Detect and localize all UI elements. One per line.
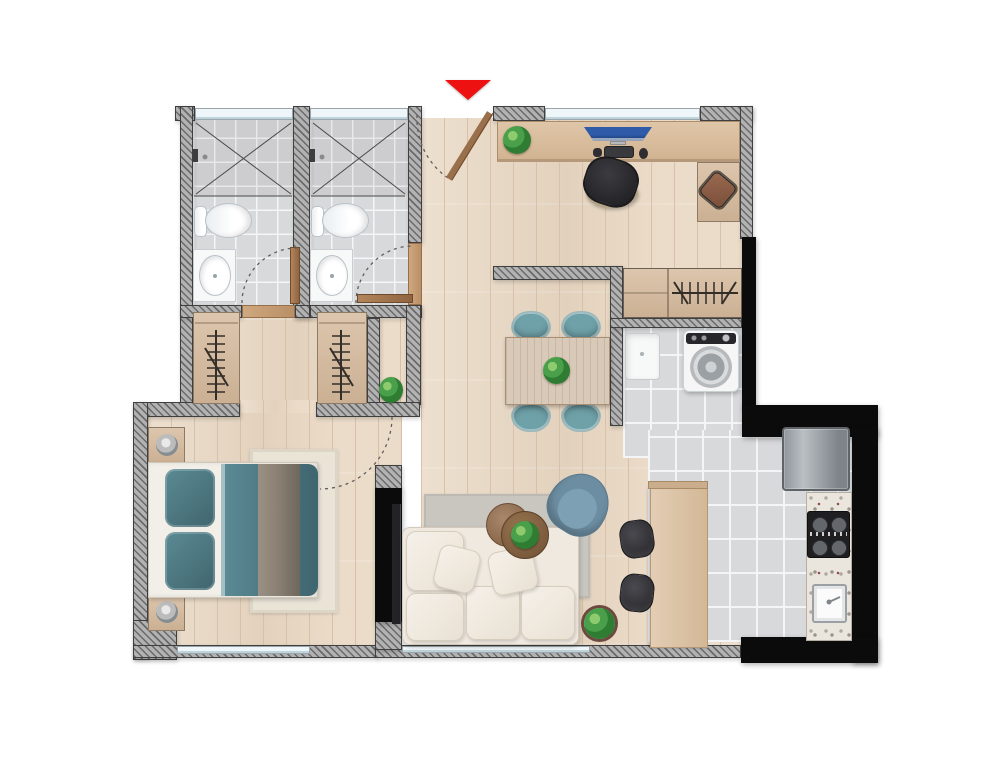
bar-counter — [650, 488, 708, 648]
coffee-table-plant — [511, 521, 539, 549]
living-floor-plant — [584, 608, 615, 639]
washer-control-panel — [686, 333, 736, 344]
cooktop-knobs — [810, 532, 847, 536]
door-leaf-bathroom-2 — [357, 294, 413, 303]
dining-chair-bottom-2 — [561, 402, 601, 432]
bed-throw-blanket — [258, 464, 300, 596]
bar-counter-edge — [648, 481, 708, 489]
shower-zone-2 — [310, 119, 408, 196]
window-bathroom-2 — [310, 108, 408, 120]
utility-sink — [625, 333, 660, 380]
mouse — [639, 148, 648, 159]
entrance-marker-icon — [445, 80, 491, 100]
wardrobe-cabinet — [623, 268, 742, 318]
desk-plant — [503, 126, 531, 154]
monitor-stand — [610, 141, 626, 145]
tv-screen — [392, 504, 401, 624]
dining-chair-bottom-1 — [511, 402, 551, 432]
washer-drum — [690, 346, 732, 388]
sink-basin-2 — [316, 255, 348, 296]
window-bedroom — [177, 646, 310, 654]
wall-tv-cap-top — [375, 465, 402, 490]
shower-zone-1 — [193, 119, 293, 196]
sofa-chaise-seat — [406, 593, 464, 641]
sink-basin-1 — [199, 255, 231, 296]
toilet-bowl-2 — [322, 203, 369, 238]
window-bathroom-1 — [195, 108, 293, 120]
shower-head-2 — [310, 149, 315, 162]
threshold-bathroom-1 — [242, 305, 295, 318]
monitor-screen — [584, 127, 652, 141]
lamp-bottom — [156, 601, 178, 623]
nook-plant — [379, 377, 403, 403]
washing-machine — [683, 330, 739, 392]
wall-dining-vertical — [610, 266, 623, 426]
bed-pillow-bottom — [165, 532, 215, 590]
wall-bath-divider-foot — [295, 305, 310, 318]
wall-bath2-right — [408, 106, 422, 243]
bed-pillow-top — [165, 469, 215, 527]
dining-table-plant — [543, 357, 570, 384]
window-living — [402, 646, 590, 653]
armchair-seat — [550, 482, 603, 536]
black-wall-right-mid — [742, 237, 756, 409]
wall-bedroom-top-right — [316, 402, 420, 417]
wall-top-entry-right — [493, 106, 545, 121]
sofa-seat-1 — [466, 586, 520, 640]
wall-study-right — [740, 106, 753, 239]
wall-bedroom-top-left — [133, 402, 240, 417]
refrigerator — [782, 427, 850, 491]
wall-bath-left — [180, 106, 193, 406]
wall-closet2-right — [367, 318, 380, 405]
toilet-bowl-1 — [205, 203, 252, 238]
wall-under-wardrobe — [610, 318, 742, 328]
wall-tv-cap-bottom — [375, 620, 402, 650]
shower-head-1 — [193, 149, 198, 162]
wall-dining-horizontal — [493, 266, 623, 280]
sofa-seat-2 — [521, 586, 575, 640]
wall-nook-right — [406, 305, 421, 405]
lamp-top — [156, 434, 178, 456]
kitchen-sink — [812, 584, 847, 623]
floor-plan — [0, 0, 1000, 781]
black-wall-kitchen-right — [852, 427, 878, 663]
hall-closet-2 — [317, 312, 367, 404]
hall-closet-1 — [193, 312, 240, 404]
door-leaf-bathroom-1 — [290, 247, 300, 304]
window-study — [545, 108, 700, 120]
